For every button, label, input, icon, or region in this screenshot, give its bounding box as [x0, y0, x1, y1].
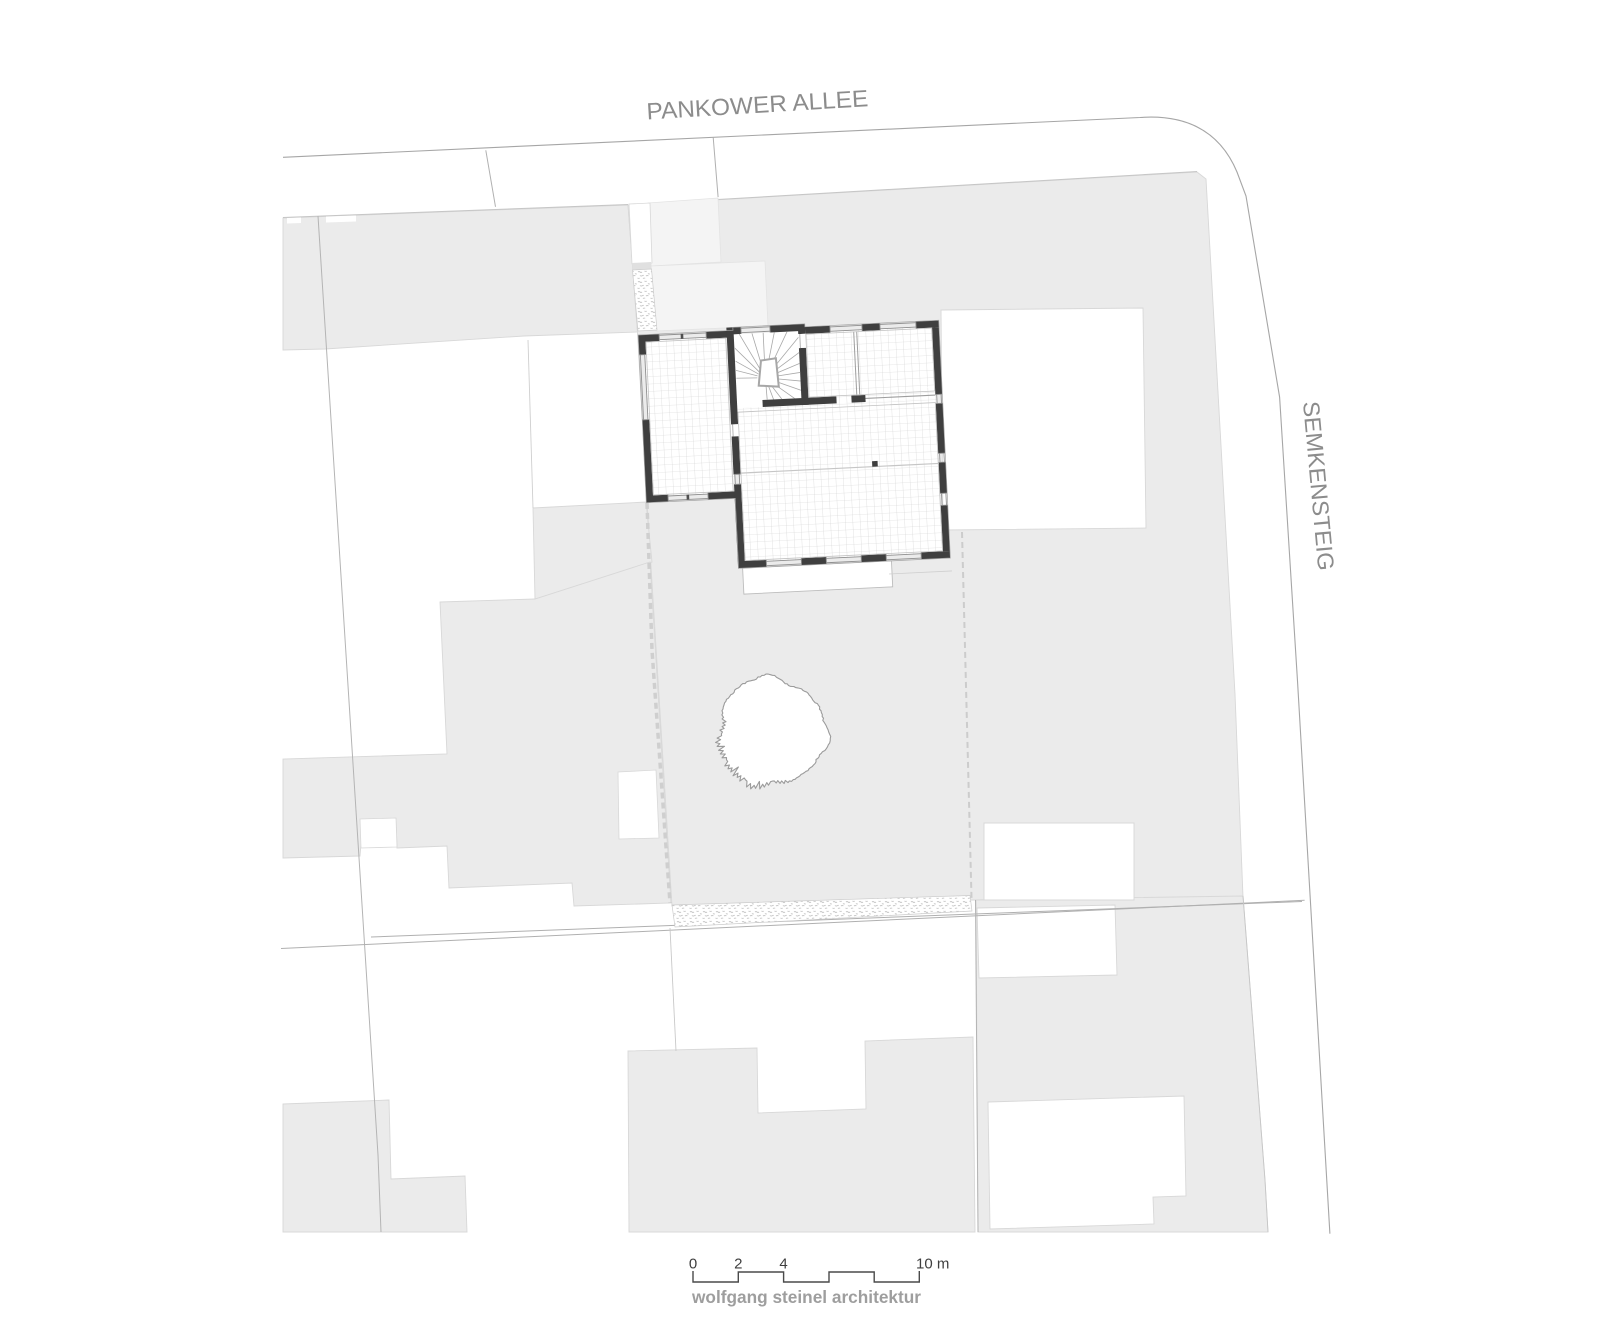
svg-text:wolfgang steinel architektur: wolfgang steinel architektur: [691, 1287, 921, 1307]
svg-text:10 m: 10 m: [916, 1256, 949, 1273]
svg-text:4: 4: [779, 1256, 787, 1273]
svg-text:2: 2: [734, 1256, 742, 1273]
svg-text:0: 0: [689, 1256, 697, 1273]
